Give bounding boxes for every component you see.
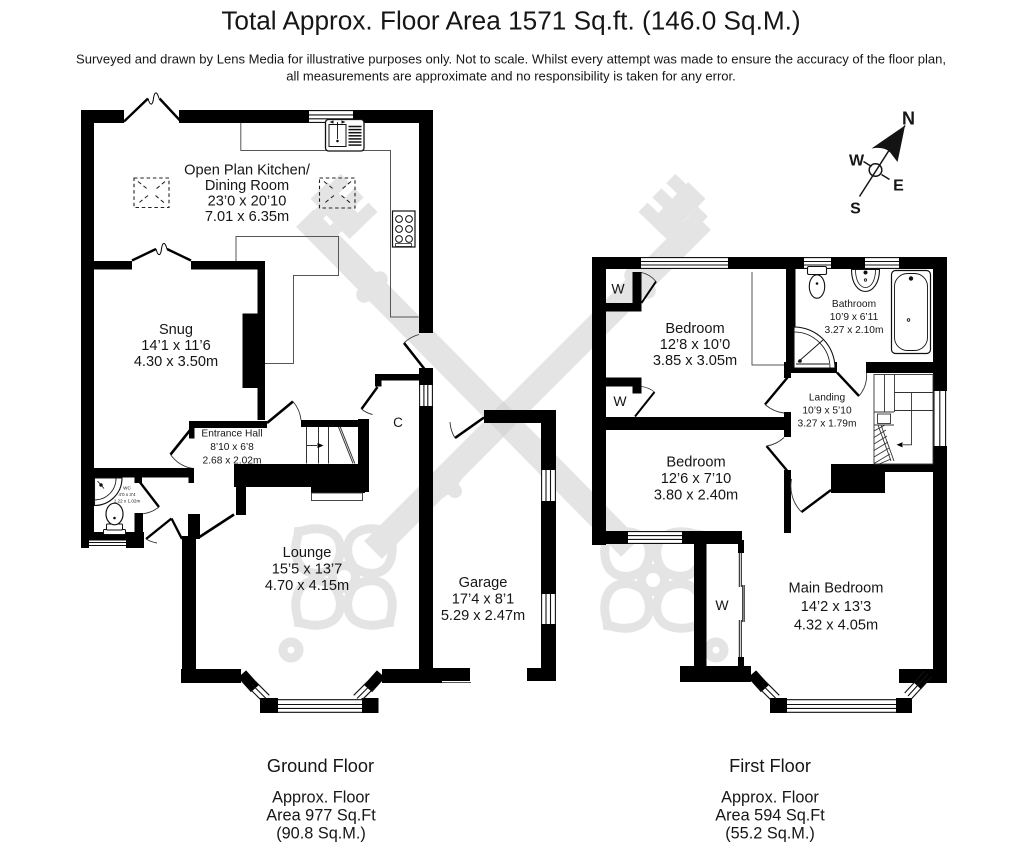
svg-text:4’0 x 3’4: 4’0 x 3’4 xyxy=(118,492,136,497)
svg-text:(55.2 Sq.M.): (55.2 Sq.M.) xyxy=(725,825,815,843)
svg-text:10’9 x 5’10: 10’9 x 5’10 xyxy=(802,406,852,417)
svg-text:Snug: Snug xyxy=(159,322,193,338)
svg-text:Landing: Landing xyxy=(809,393,846,404)
svg-text:5.29 x 2.47m: 5.29 x 2.47m xyxy=(441,608,525,624)
svg-text:W: W xyxy=(715,597,729,613)
svg-text:17’4 x 8’1: 17’4 x 8’1 xyxy=(452,592,514,608)
svg-text:Entrance Hall: Entrance Hall xyxy=(201,429,262,440)
svg-text:Total Approx. Floor Area 1571: Total Approx. Floor Area 1571 Sq.ft. (14… xyxy=(221,6,800,36)
svg-text:12’8 x 10’0: 12’8 x 10’0 xyxy=(660,337,731,353)
svg-text:Bedroom: Bedroom xyxy=(666,455,725,471)
svg-text:3.27 x 1.79m: 3.27 x 1.79m xyxy=(798,419,857,430)
svg-text:W: W xyxy=(849,153,865,170)
svg-text:3.85 x 3.05m: 3.85 x 3.05m xyxy=(653,353,737,369)
svg-text:23’0 x 20’10: 23’0 x 20’10 xyxy=(208,194,287,210)
svg-text:W: W xyxy=(611,281,625,297)
svg-text:8’10 x 6’8: 8’10 x 6’8 xyxy=(210,442,254,453)
svg-text:Dining Room: Dining Room xyxy=(205,178,289,194)
svg-text:Area 977 Sq.Ft: Area 977 Sq.Ft xyxy=(266,807,376,825)
svg-text:WC: WC xyxy=(123,486,131,491)
svg-text:12’6 x 7’10: 12’6 x 7’10 xyxy=(661,471,732,487)
svg-text:14’2 x 13’3: 14’2 x 13’3 xyxy=(801,599,872,615)
svg-text:E: E xyxy=(893,178,904,195)
svg-text:14’1 x 11’6: 14’1 x 11’6 xyxy=(141,338,211,354)
svg-text:10’9 x 6’11: 10’9 x 6’11 xyxy=(830,312,879,323)
svg-text:Open Plan Kitchen/: Open Plan Kitchen/ xyxy=(184,163,311,179)
svg-text:Approx. Floor: Approx. Floor xyxy=(272,789,370,807)
svg-text:Lounge: Lounge xyxy=(283,545,332,561)
svg-text:N: N xyxy=(902,109,915,129)
svg-text:Area 594 Sq.Ft: Area 594 Sq.Ft xyxy=(715,807,825,825)
svg-text:15’5 x 13’7: 15’5 x 13’7 xyxy=(272,562,343,578)
svg-text:(90.8 Sq.M.): (90.8 Sq.M.) xyxy=(276,825,366,843)
svg-text:7.01 x 6.35m: 7.01 x 6.35m xyxy=(205,209,289,225)
svg-text:First Floor: First Floor xyxy=(729,756,811,776)
svg-text:Main Bedroom: Main Bedroom xyxy=(789,581,884,597)
svg-text:all measurements are approxima: all measurements are approximate and no … xyxy=(286,69,736,84)
svg-text:Surveyed and drawn by Lens Med: Surveyed and drawn by Lens Media for ill… xyxy=(76,52,946,67)
svg-text:3.80 x 2.40m: 3.80 x 2.40m xyxy=(654,488,738,504)
svg-text:Bathroom: Bathroom xyxy=(832,299,876,310)
svg-text:4.30 x 3.50m: 4.30 x 3.50m xyxy=(134,354,218,370)
svg-text:4.70 x 4.15m: 4.70 x 4.15m xyxy=(265,578,349,594)
svg-text:Approx. Floor: Approx. Floor xyxy=(721,789,819,807)
svg-text:4.32 x 4.05m: 4.32 x 4.05m xyxy=(794,618,878,634)
svg-text:C: C xyxy=(393,415,403,430)
svg-text:1.22 x 1.02m: 1.22 x 1.02m xyxy=(114,499,141,504)
svg-text:Garage: Garage xyxy=(459,575,508,591)
svg-text:Ground Floor: Ground Floor xyxy=(267,756,374,776)
svg-text:W: W xyxy=(613,393,627,409)
svg-text:Bedroom: Bedroom xyxy=(665,321,724,337)
svg-text:S: S xyxy=(850,201,861,218)
svg-text:3.27 x 2.10m: 3.27 x 2.10m xyxy=(825,325,884,336)
svg-text:2.68 x 2.02m: 2.68 x 2.02m xyxy=(203,456,262,467)
